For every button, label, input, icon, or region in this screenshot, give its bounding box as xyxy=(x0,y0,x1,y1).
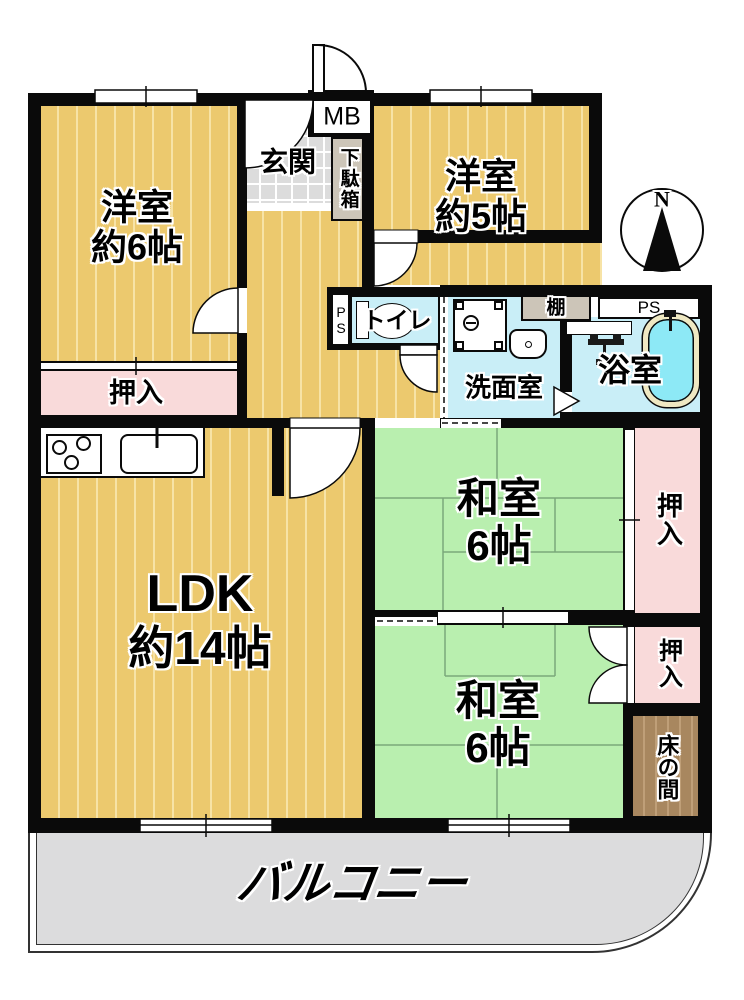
washroom-label: 洗面室 xyxy=(465,373,543,402)
japanese-room-1-label: 和室 6帖 xyxy=(457,475,541,569)
west-room-1-door xyxy=(193,288,247,333)
japanese-room-2-name: 和室 xyxy=(456,677,540,724)
closet-east-upper-label: 押入 xyxy=(653,492,682,548)
balcony-label: バルコニー xyxy=(234,858,470,910)
ldk-door xyxy=(290,418,360,498)
shelf-label: 棚 xyxy=(546,297,565,318)
closet-west-label: 押入 xyxy=(109,378,163,408)
ldk-name: LDK xyxy=(128,565,271,623)
ldk-label: LDK 約14帖 xyxy=(128,565,271,675)
japanese-room-2-label: 和室 6帖 xyxy=(456,677,540,771)
compass-north-label: N xyxy=(654,188,670,213)
west-room-2-door xyxy=(374,230,418,286)
tokonoma-label: 床の間 xyxy=(654,734,679,800)
entrance-label: 玄関 xyxy=(260,146,316,177)
dashed-openings xyxy=(375,297,501,626)
plan-overlay xyxy=(0,0,744,1000)
toilet-door xyxy=(400,345,437,392)
bathroom-door-marker xyxy=(554,387,579,415)
shoe-cabinet-label: 下駄箱 xyxy=(337,148,358,211)
closet-east-lower-label: 押入 xyxy=(654,638,681,690)
west-room-2-name: 洋室 xyxy=(435,157,527,197)
meter-box-label: MB xyxy=(323,103,361,132)
west-room-2-size: 約5帖 xyxy=(435,197,527,237)
west-room-1-label: 洋室 約6帖 xyxy=(91,188,183,269)
bathroom-label: 浴室 xyxy=(598,353,662,389)
japanese-room-1-name: 和室 xyxy=(457,475,541,522)
ldk-size: 約14帖 xyxy=(128,623,271,675)
floor-plan: 洋室 約6帖 洋室 約5帖 玄関 MB 下駄箱 PS トイレ 洗面室 棚 PS … xyxy=(0,0,744,1000)
ps-bath-label: PS xyxy=(638,298,661,318)
west-room-2-label: 洋室 約5帖 xyxy=(435,157,527,238)
toilet-label: トイレ xyxy=(363,308,432,334)
closet-east-lower-double-doors xyxy=(589,627,627,703)
entrance-door xyxy=(313,45,366,93)
japanese-room-2-size: 6帖 xyxy=(456,724,540,771)
japanese-room-1-size: 6帖 xyxy=(457,522,541,569)
west-room-1-name: 洋室 xyxy=(91,188,183,228)
west-room-1-size: 約6帖 xyxy=(91,228,183,268)
ps-toilet-label: PS xyxy=(333,304,349,336)
